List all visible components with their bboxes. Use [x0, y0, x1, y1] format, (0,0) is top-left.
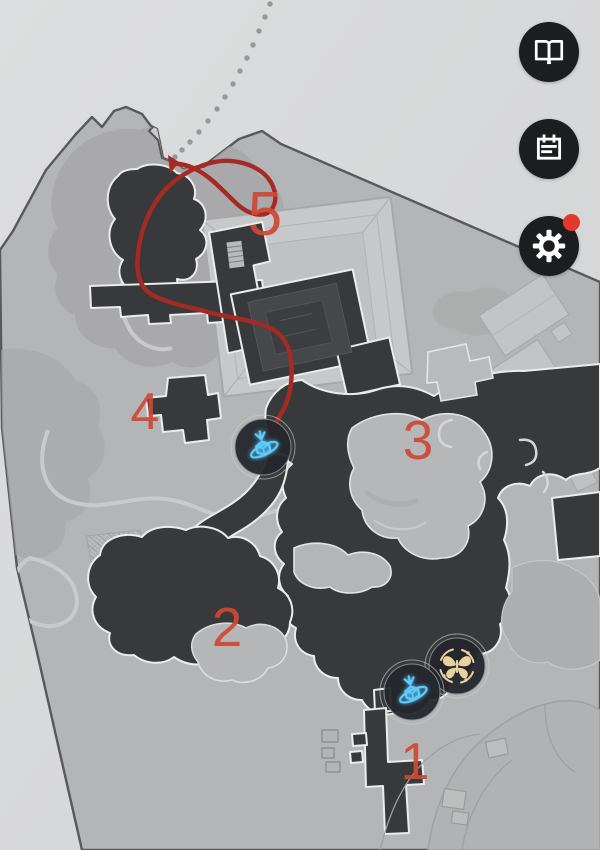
open-book-icon: [532, 35, 566, 69]
notes-button[interactable]: [519, 119, 579, 179]
gear-icon: [531, 228, 567, 264]
map-toolbar: [519, 22, 579, 313]
route-marker-2: 2: [212, 596, 243, 658]
route-marker-1: 1: [401, 733, 430, 791]
route-marker-5: 5: [248, 180, 282, 249]
map-canvas[interactable]: 1 2 3 4 5: [0, 0, 600, 850]
space-anchor-poi-1[interactable]: [231, 415, 295, 479]
route-marker-3: 3: [403, 409, 434, 471]
notepad-icon: [532, 132, 566, 166]
settings-button[interactable]: [519, 216, 579, 276]
guide-button[interactable]: [519, 22, 579, 82]
route-marker-4: 4: [131, 383, 160, 441]
settings-notification-badge: [563, 214, 580, 231]
space-anchor-poi-2[interactable]: [380, 660, 444, 724]
